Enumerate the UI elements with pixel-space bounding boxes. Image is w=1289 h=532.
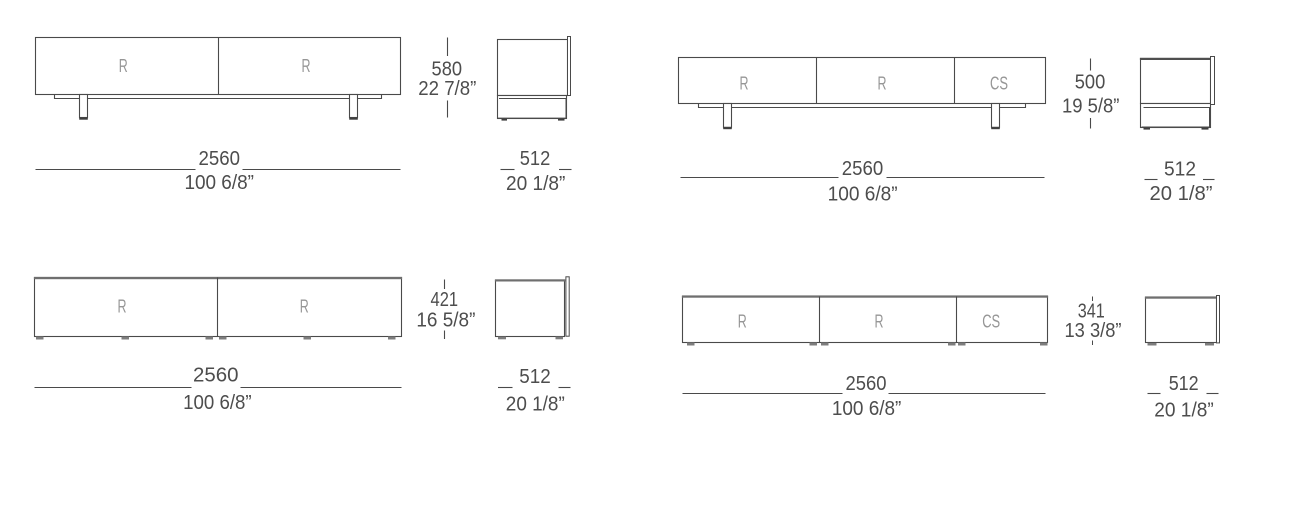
svg-text:2560: 2560 bbox=[842, 158, 884, 180]
svg-text:20 1/8”: 20 1/8” bbox=[1150, 183, 1213, 205]
svg-text:500: 500 bbox=[1075, 72, 1106, 94]
svg-text:R: R bbox=[300, 297, 309, 317]
svg-text:20 1/8”: 20 1/8” bbox=[506, 394, 565, 416]
svg-text:512: 512 bbox=[1169, 373, 1199, 395]
svg-text:341: 341 bbox=[1078, 300, 1105, 322]
svg-text:421: 421 bbox=[431, 289, 459, 311]
svg-text:580: 580 bbox=[432, 59, 463, 81]
svg-text:CS: CS bbox=[990, 74, 1008, 94]
svg-text:512: 512 bbox=[1164, 159, 1196, 181]
svg-text:19 5/8”: 19 5/8” bbox=[1062, 95, 1120, 117]
svg-text:512: 512 bbox=[520, 148, 551, 170]
svg-text:R: R bbox=[875, 312, 884, 332]
svg-text:R: R bbox=[740, 74, 749, 94]
svg-text:20 1/8”: 20 1/8” bbox=[1154, 399, 1214, 421]
svg-text:16 5/8”: 16 5/8” bbox=[416, 310, 475, 332]
svg-text:R: R bbox=[878, 74, 887, 94]
svg-text:2560: 2560 bbox=[199, 148, 241, 170]
svg-text:R: R bbox=[738, 312, 747, 332]
svg-text:CS: CS bbox=[982, 312, 1000, 332]
svg-text:13 3/8”: 13 3/8” bbox=[1065, 320, 1122, 342]
svg-text:100 6/8”: 100 6/8” bbox=[184, 172, 254, 194]
svg-text:100 6/8”: 100 6/8” bbox=[828, 183, 898, 205]
svg-text:512: 512 bbox=[519, 366, 551, 388]
svg-text:2560: 2560 bbox=[846, 373, 887, 395]
svg-text:20 1/8”: 20 1/8” bbox=[506, 173, 566, 195]
svg-text:22 7/8”: 22 7/8” bbox=[418, 78, 476, 100]
svg-text:100 6/8”: 100 6/8” bbox=[183, 392, 252, 414]
svg-text:2560: 2560 bbox=[193, 365, 239, 387]
svg-text:R: R bbox=[302, 56, 311, 76]
svg-text:R: R bbox=[119, 56, 128, 76]
svg-text:100 6/8”: 100 6/8” bbox=[832, 398, 902, 420]
svg-text:R: R bbox=[118, 297, 127, 317]
